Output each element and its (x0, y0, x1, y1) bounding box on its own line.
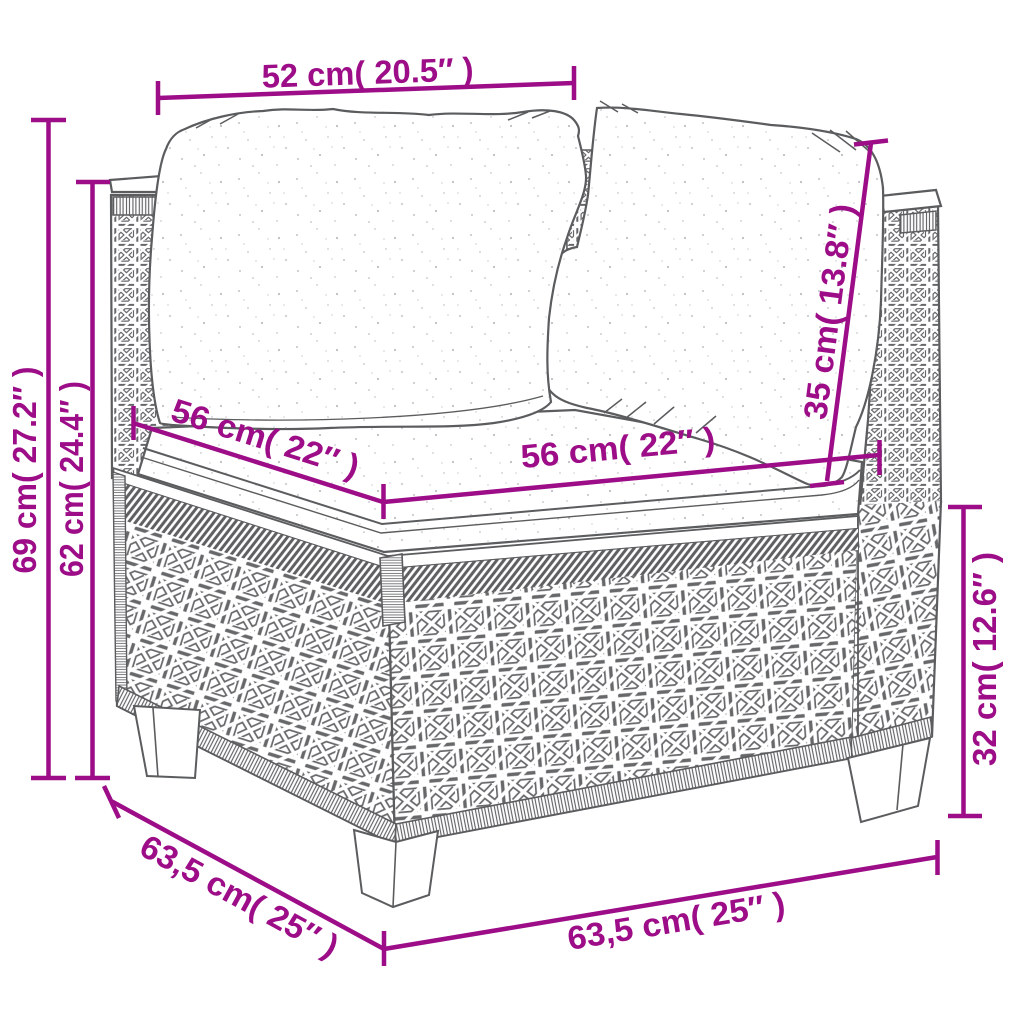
svg-text:32 cm( 12.6″ ): 32 cm( 12.6″ ) (966, 552, 1003, 766)
svg-text:52 cm( 20.5″ ): 52 cm( 20.5″ ) (261, 50, 474, 94)
svg-text:69 cm( 27.2″ ): 69 cm( 27.2″ ) (6, 367, 43, 574)
svg-text:62 cm( 24.4″ ): 62 cm( 24.4″ ) (53, 381, 90, 577)
